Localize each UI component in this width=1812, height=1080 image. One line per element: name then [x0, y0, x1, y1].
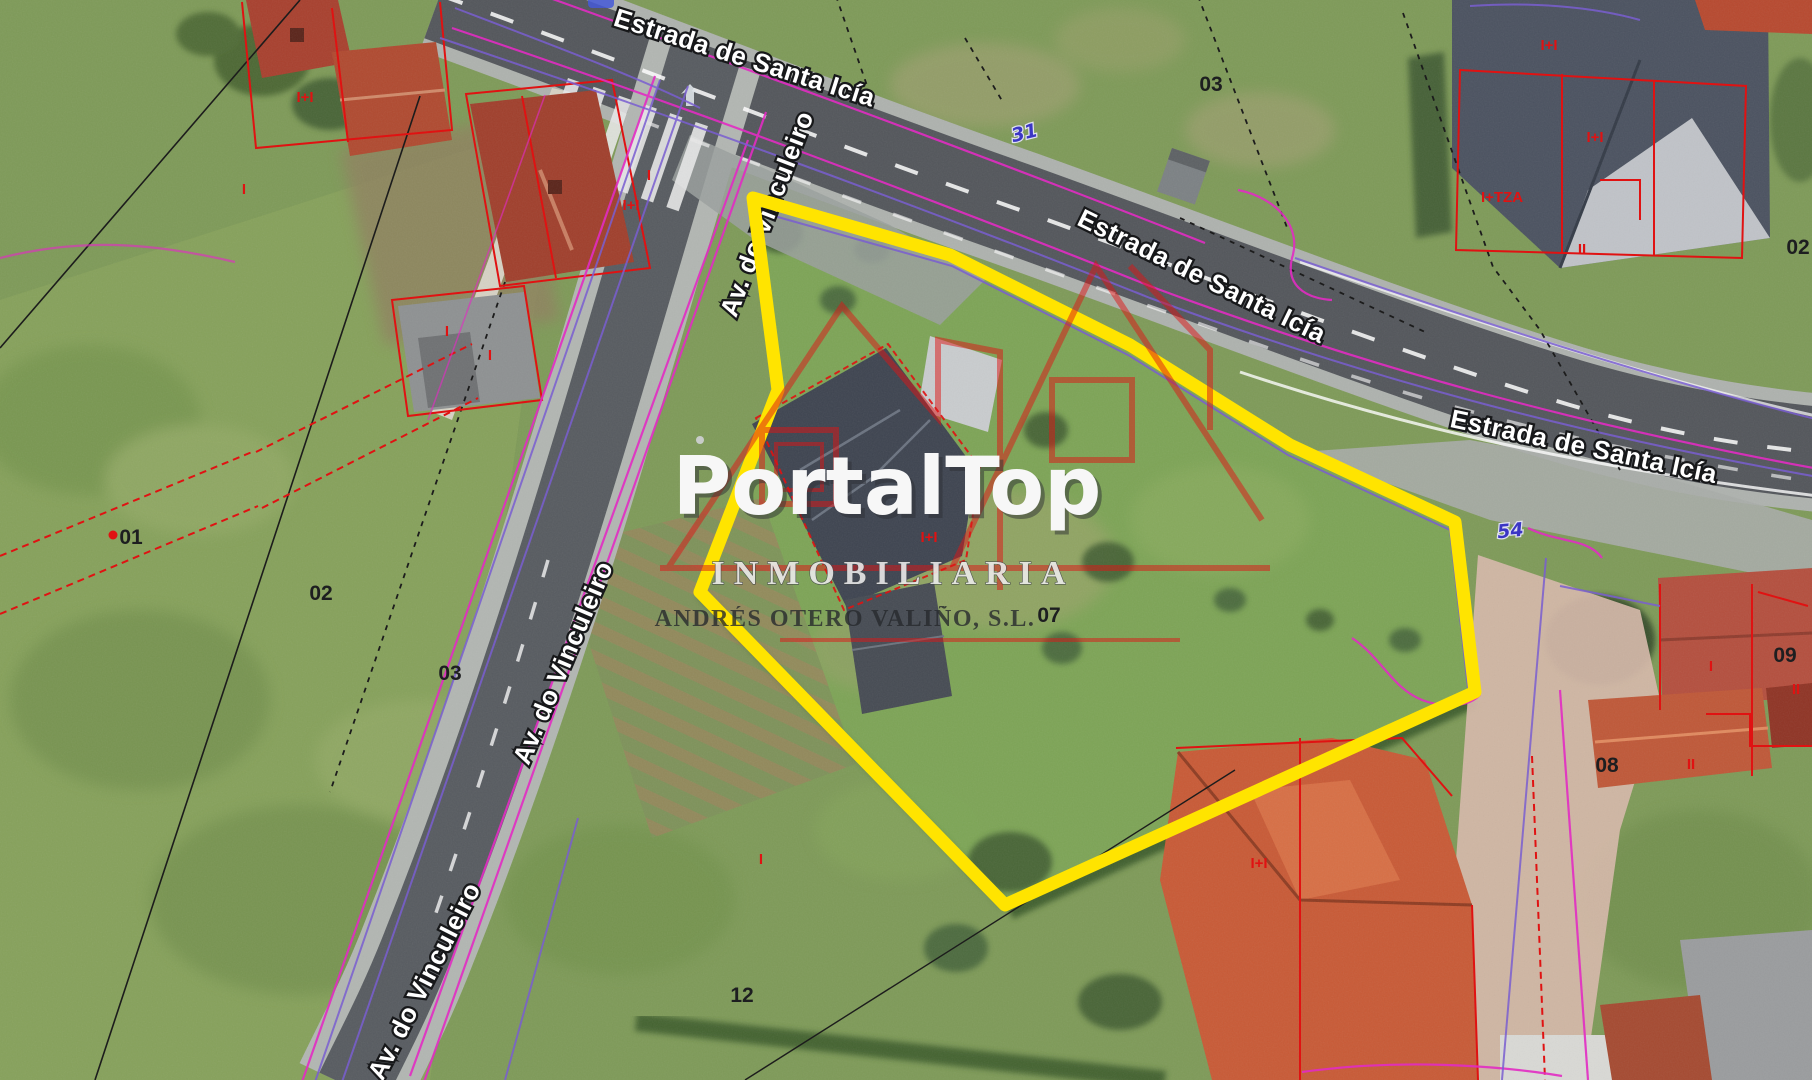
- parcel-number-12: 12: [730, 984, 753, 1007]
- mark-storeys: II: [1578, 241, 1586, 258]
- watermark-tagline: INMOBILIARIA: [711, 555, 1074, 592]
- aerial-map: I+I I I+I I I I I+I I+I I+I I+TZA II I I…: [0, 0, 1812, 1080]
- parcel-number-02-right: 02: [1786, 236, 1809, 259]
- mark-storeys: I: [242, 181, 246, 198]
- mark-storeys: II: [1792, 681, 1800, 698]
- parcel-number-07: 07: [1037, 604, 1060, 627]
- map-canvas: I+I I I+I I I I I+I I+I I+I I+TZA II I I…: [0, 0, 1812, 1080]
- parcel-number-02: 02: [309, 582, 332, 605]
- mark-storeys: I+I: [622, 197, 639, 214]
- parcel-number-01: 01: [119, 526, 143, 549]
- red-point-marker: [109, 531, 118, 540]
- plot-ref-54: 54: [1496, 519, 1525, 544]
- mark-storeys: I+I: [1586, 129, 1603, 146]
- parcel-number-08: 08: [1595, 754, 1619, 777]
- map-fragment-icon: [588, 0, 614, 8]
- mark-storeys: I+I: [1540, 37, 1557, 54]
- watermark-company: ANDRÉS OTERO VALIÑO, S.L.: [655, 606, 1036, 632]
- parcel-number-03: 03: [438, 662, 461, 685]
- parcel-number-09: 09: [1773, 644, 1796, 667]
- parcel-number-03-top: 03: [1199, 73, 1222, 96]
- mark-storeys: II: [1687, 756, 1695, 773]
- mark-storeys-terrace: I+TZA: [1481, 189, 1523, 206]
- watermark-brand: PortalTop: [673, 440, 1102, 533]
- mark-storeys: I: [759, 851, 763, 868]
- mark-storeys: I+I: [1250, 855, 1267, 872]
- mark-storeys: I: [647, 167, 651, 184]
- photo-grain: [0, 0, 1812, 1080]
- mark-storeys: I: [1709, 658, 1713, 675]
- mark-storeys: I: [488, 347, 492, 364]
- mark-storeys: I: [445, 323, 449, 340]
- mark-storeys: I+I: [296, 89, 313, 106]
